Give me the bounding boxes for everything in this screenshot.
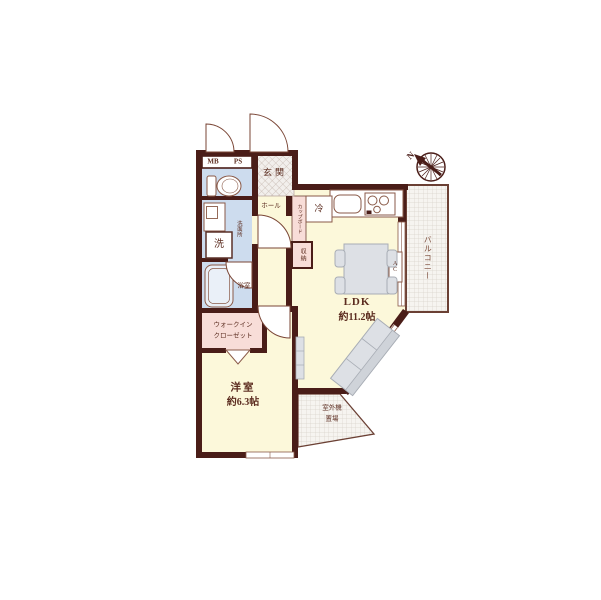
floor-plan: MB PS 玄関 ホール カップボード 収納 冷 洗面所 洗 浴室 LDK 約1… xyxy=(0,0,601,600)
refrigerator-label: 冷 xyxy=(314,204,323,213)
western-room-area-label: 約6.3帖 xyxy=(227,398,260,409)
entrance-door-arc xyxy=(250,114,288,152)
floor-plan-drawing xyxy=(0,0,601,600)
kitchen-sink xyxy=(334,195,361,213)
kitchen xyxy=(330,190,403,217)
air-conditioner-label: AC xyxy=(392,261,398,273)
compass-icon xyxy=(414,153,445,181)
outdoor-unit-label-1: 室外機 xyxy=(322,406,342,413)
pipe-space-label: PS xyxy=(234,158,242,165)
balcony-label: バルコニー xyxy=(423,236,431,281)
entrance-label: 玄関 xyxy=(263,168,287,177)
washing-machine-label: 洗 xyxy=(214,240,224,251)
dining-table xyxy=(344,244,388,294)
hall-label: ホール xyxy=(261,204,281,211)
storage-label: 収納 xyxy=(299,248,305,262)
outdoor-unit-label-2: 置場 xyxy=(326,417,339,424)
dining-set xyxy=(335,244,397,294)
corridor-side-door-arc xyxy=(206,124,234,152)
meter-box-label: MB xyxy=(207,158,218,165)
ldk-label: LDK xyxy=(344,297,371,309)
bathroom-label: 浴室 xyxy=(238,284,251,291)
washroom-label: 洗面所 xyxy=(235,221,241,238)
toilet xyxy=(207,176,241,196)
walk-in-closet-label-2: クローゼット xyxy=(214,334,253,341)
western-room-label: 洋室 xyxy=(231,382,256,393)
vanity xyxy=(204,203,225,231)
tv-board xyxy=(296,337,304,379)
cupboard-label: カップボード xyxy=(296,204,301,234)
ldk-area-label: 約11.2帖 xyxy=(339,313,376,324)
walk-in-closet-label-1: ウォークイン xyxy=(214,323,253,330)
